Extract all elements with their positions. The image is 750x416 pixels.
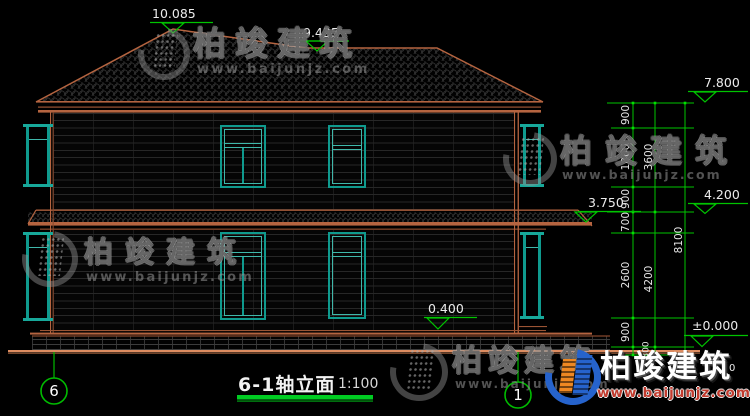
plinth-top-band bbox=[30, 333, 592, 335]
dim-900-c: 900 bbox=[621, 322, 632, 342]
dim-700: 700 bbox=[621, 212, 632, 232]
dim-900-a: 900 bbox=[621, 105, 632, 125]
brand-url: www.baijunjz.com bbox=[597, 387, 750, 401]
window-sill bbox=[23, 184, 53, 188]
elevation-label-second-floor: 4.200 bbox=[704, 189, 740, 202]
elevation-label-plinth: 0.400 bbox=[428, 303, 464, 316]
dim-900-b: 900 bbox=[621, 189, 632, 209]
eave-fascia bbox=[38, 110, 541, 113]
side-window-body bbox=[26, 127, 50, 184]
watermark-brand: 柏竣建筑 bbox=[560, 135, 740, 167]
plinth-top-line bbox=[32, 335, 610, 336]
dim-4200: 4200 bbox=[644, 266, 655, 293]
wall-base-line bbox=[40, 330, 546, 331]
window-1f-far-right bbox=[328, 232, 366, 319]
porch-slab-line bbox=[519, 326, 547, 327]
title-underline-2 bbox=[237, 400, 373, 401]
watermark-logo-icon bbox=[503, 132, 557, 186]
window-transom bbox=[29, 139, 47, 140]
window-2f-right bbox=[328, 125, 366, 188]
window-inner-frame bbox=[332, 236, 362, 315]
elevation-label-eave: 7.800 bbox=[704, 77, 740, 90]
window-sill bbox=[23, 318, 53, 322]
belt-fascia bbox=[28, 222, 592, 226]
dim-2600: 2600 bbox=[621, 262, 632, 289]
window-transom bbox=[333, 145, 361, 150]
window-transom bbox=[225, 143, 261, 148]
window-2f-left bbox=[220, 125, 266, 188]
watermark-logo-icon bbox=[22, 231, 78, 287]
eave-top-line bbox=[36, 101, 543, 103]
watermark-logo-icon bbox=[138, 28, 190, 80]
brand-name: 柏竣建筑 bbox=[600, 352, 732, 383]
window-mullion bbox=[242, 148, 244, 183]
watermark-url: www.baijunjz.com bbox=[562, 169, 722, 182]
window-transom bbox=[526, 247, 538, 248]
watermark-brand: 柏竣建筑 bbox=[193, 27, 361, 60]
side-window-1f-right bbox=[520, 232, 544, 319]
side-window-2f-left bbox=[23, 124, 53, 187]
drawing-scale: 1:100 bbox=[338, 376, 378, 392]
drawing-title: 6-1轴立面 bbox=[238, 370, 335, 397]
watermark-logo-icon bbox=[390, 343, 448, 401]
side-window-body bbox=[523, 235, 541, 316]
elevation-label-canopy: 3.750 bbox=[588, 197, 624, 210]
dim-8100: 8100 bbox=[674, 227, 685, 254]
window-transom bbox=[333, 252, 361, 257]
eave-mid-line bbox=[38, 107, 541, 108]
axis-bubble-6-label: 6 bbox=[41, 378, 67, 404]
window-inner-frame bbox=[332, 129, 362, 184]
belt-bottom-line bbox=[40, 229, 546, 230]
watermark-brand: 柏竣建筑 bbox=[84, 238, 248, 267]
watermark-url: www.baijunjz.com bbox=[86, 271, 254, 284]
elevation-label-peak: 10.085 bbox=[152, 8, 196, 21]
belt-left-slope bbox=[28, 210, 36, 224]
watermark-url: www.baijunjz.com bbox=[197, 63, 370, 76]
brand-logo-icon bbox=[545, 349, 601, 405]
belt-top-line bbox=[36, 210, 578, 211]
elevation-label-ground: ±0.000 bbox=[692, 320, 738, 333]
window-sill bbox=[520, 316, 544, 320]
cad-elevation-canvas: 10.085 9.435 7.800 4.200 3.750 0.400 ±0.… bbox=[0, 0, 750, 416]
